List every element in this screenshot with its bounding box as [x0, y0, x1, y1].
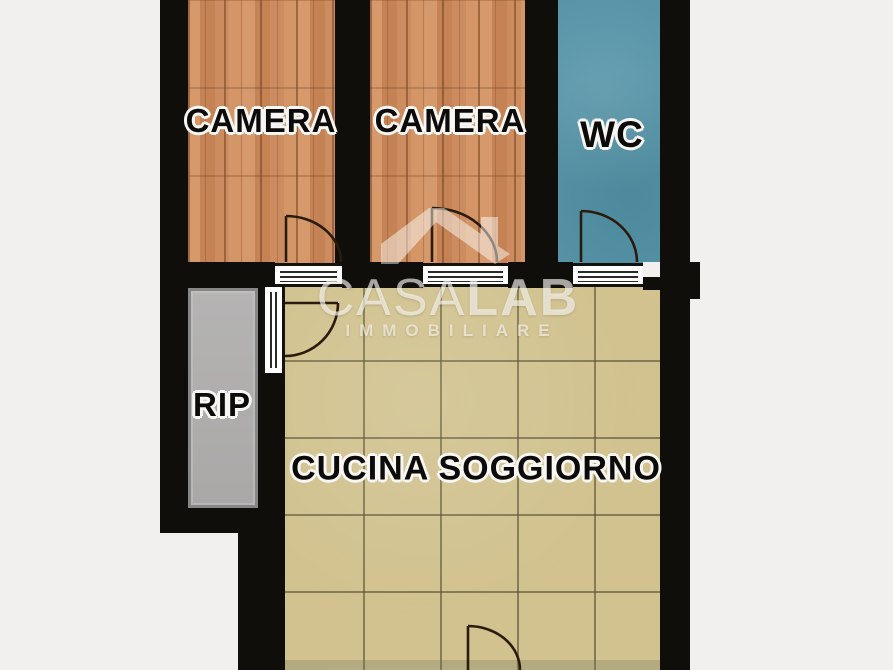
room-label-camera-2: CAMERA: [375, 102, 526, 140]
watermark-subtitle: IMMOBILIARE: [345, 321, 558, 341]
watermark-brand: CASALAB: [317, 268, 579, 328]
room-label-camera-1: CAMERA: [186, 102, 337, 140]
room-label-cucina: CUCINA SOGGIORNO: [291, 450, 661, 489]
floorplan-canvas: CAMERA CAMERA WC RIP CUCINA SOGGIORNO CA…: [0, 0, 893, 670]
room-label-rip: RIP: [193, 386, 251, 424]
watermark-brand-prefix: CASA: [317, 269, 467, 327]
door-arc-cucina-bottom: [468, 626, 520, 670]
room-label-wc: WC: [580, 114, 644, 156]
watermark-brand-suffix: LAB: [466, 269, 579, 327]
door-arc-wc: [581, 211, 637, 262]
door-arc-camera-1: [286, 216, 341, 262]
house-roof-icon: [378, 202, 513, 266]
